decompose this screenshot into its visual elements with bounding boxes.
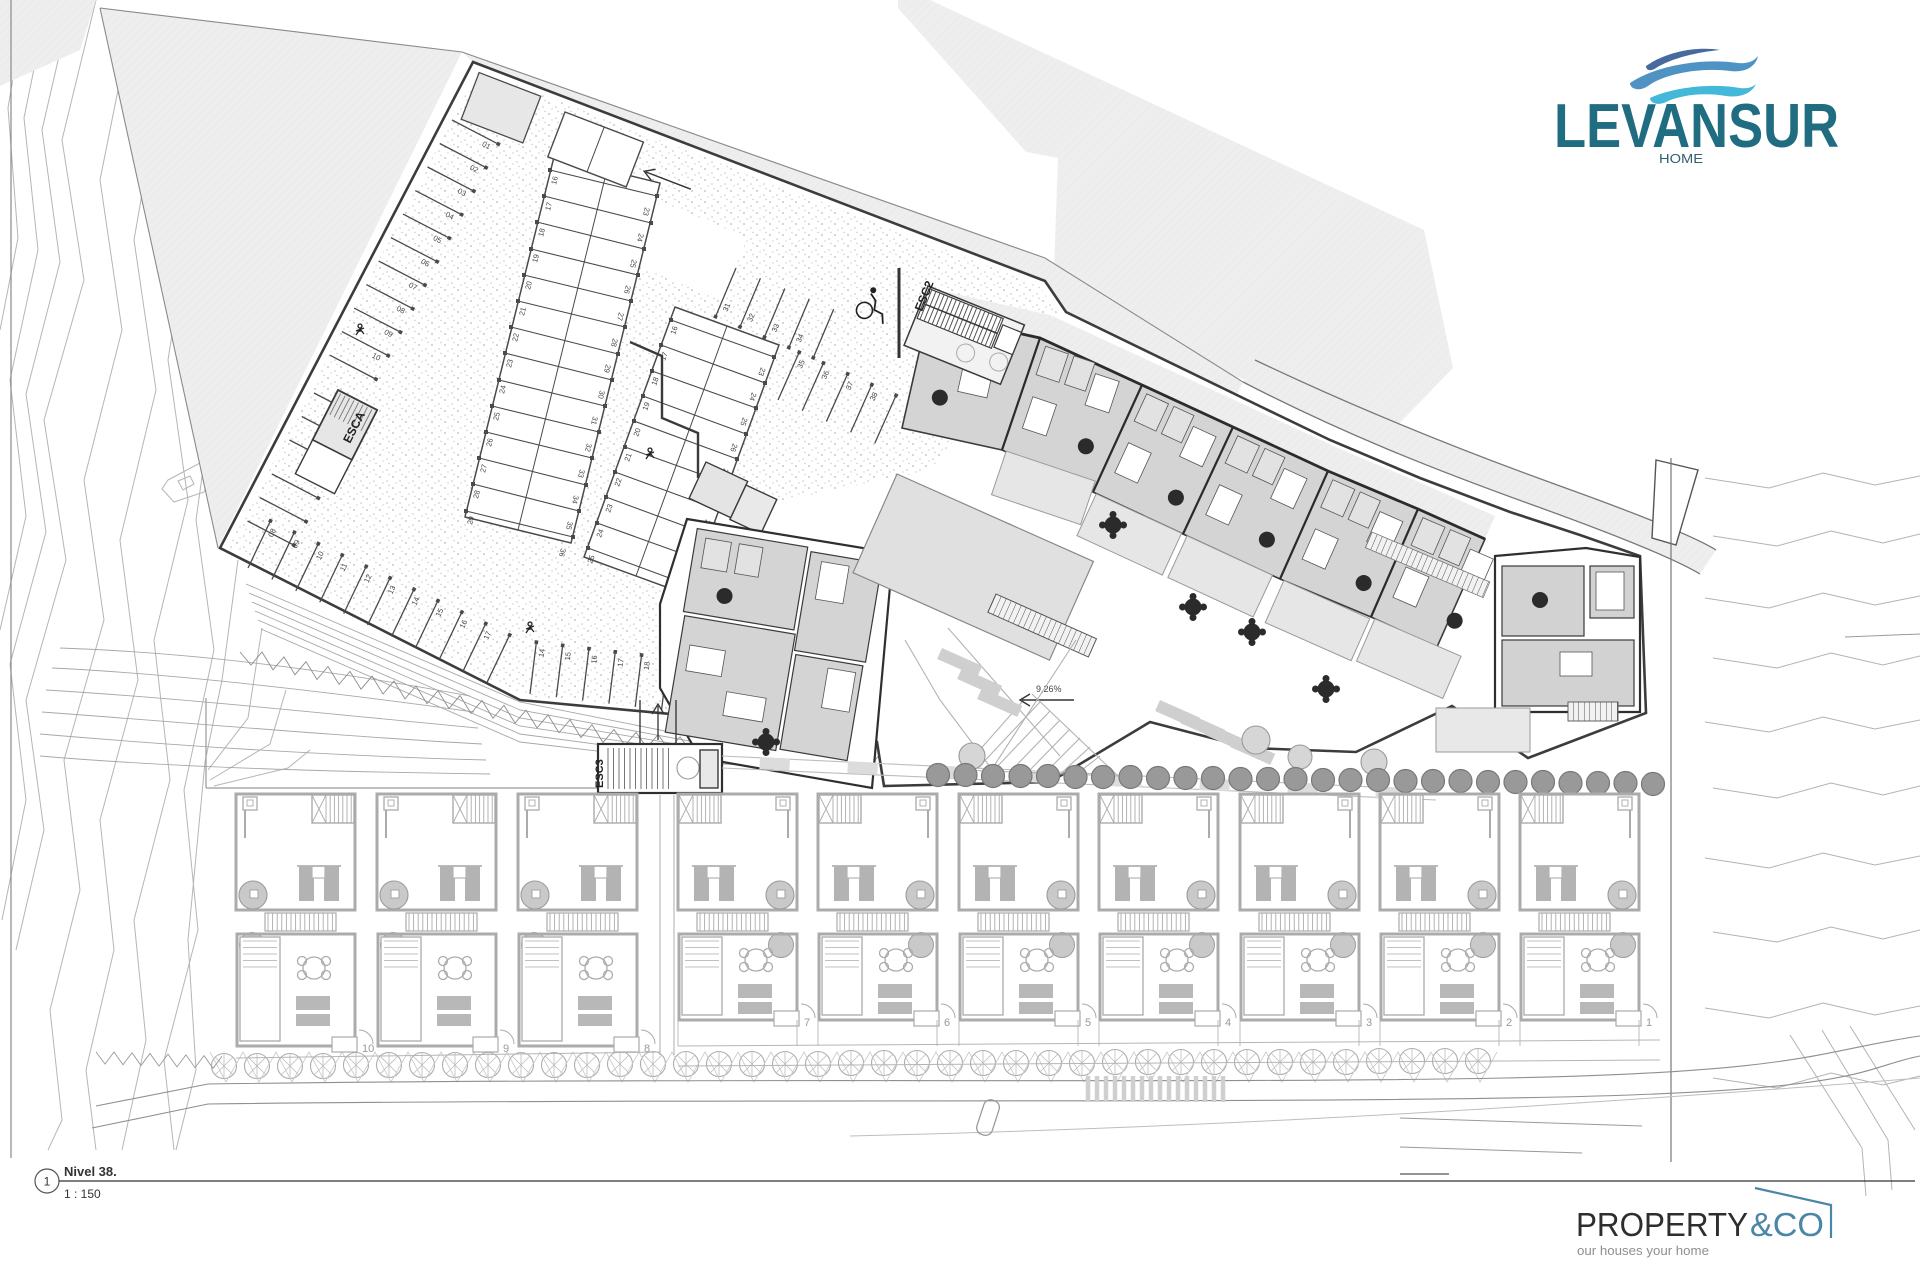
svg-text:10: 10 [362, 1043, 374, 1055]
svg-text:15: 15 [563, 651, 573, 660]
svg-text:6: 6 [944, 1017, 950, 1029]
svg-text:&CO: &CO [1750, 1206, 1824, 1243]
svg-text:5: 5 [1085, 1017, 1091, 1029]
svg-text:our houses your home: our houses your home [1577, 1244, 1709, 1258]
svg-text:Nivel 38.: Nivel 38. [64, 1164, 117, 1179]
svg-text:1: 1 [1646, 1017, 1652, 1029]
svg-text:PROPERTY: PROPERTY [1576, 1206, 1748, 1243]
svg-text:1: 1 [44, 1175, 51, 1189]
svg-text:9: 9 [503, 1043, 509, 1055]
svg-text:17: 17 [616, 658, 626, 667]
svg-text:14: 14 [537, 648, 547, 657]
svg-text:16: 16 [589, 655, 599, 664]
svg-text:ESC3: ESC3 [594, 759, 606, 788]
svg-text:1 : 150: 1 : 150 [64, 1187, 101, 1201]
svg-text:7: 7 [804, 1017, 810, 1029]
svg-text:3: 3 [1366, 1017, 1372, 1029]
svg-text:2: 2 [1506, 1017, 1512, 1029]
svg-text:4: 4 [1225, 1017, 1231, 1029]
svg-text:18: 18 [642, 661, 652, 670]
svg-text:8: 8 [644, 1043, 650, 1055]
svg-text:9,26%: 9,26% [1036, 684, 1062, 694]
svg-text:HOME: HOME [1659, 151, 1703, 166]
